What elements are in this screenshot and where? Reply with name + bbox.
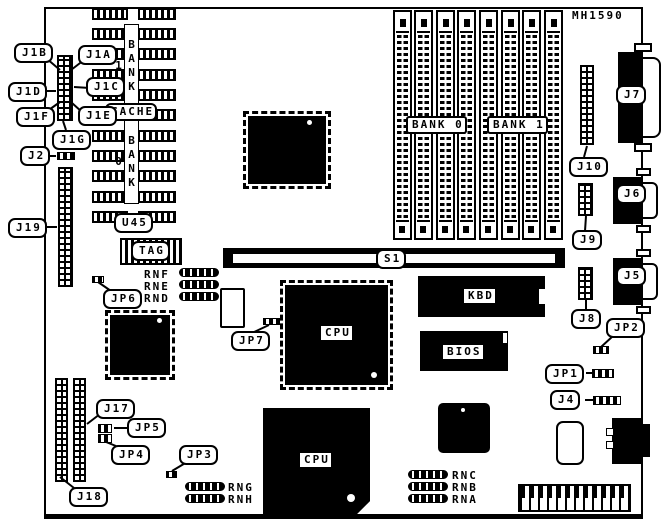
rng-network xyxy=(185,482,225,491)
rnd-label: RND xyxy=(144,293,170,304)
s1-label: S1 xyxy=(376,249,406,269)
rna-label: RNA xyxy=(452,494,478,505)
callout-jp5: JP5 xyxy=(127,418,166,438)
jp2-jumper xyxy=(593,346,609,354)
dip-chip xyxy=(138,8,176,20)
dip-chip xyxy=(92,8,128,20)
j18-connector xyxy=(55,378,68,482)
dip-chip xyxy=(92,191,128,203)
dip-chip xyxy=(138,191,176,203)
cpu-qfp-label: CPU xyxy=(320,325,353,341)
kbd-label: KBD xyxy=(463,288,496,304)
keyboard-din-connector xyxy=(612,418,643,464)
callout-j5: J5 xyxy=(616,266,646,286)
battery xyxy=(556,421,584,465)
callout-j8: J8 xyxy=(571,309,601,329)
bank0-dip-label: BANK 0 xyxy=(124,120,139,204)
j1-header xyxy=(57,55,73,121)
rna-network xyxy=(408,494,448,503)
callout-j10: J10 xyxy=(569,157,608,177)
jp5-jumper xyxy=(98,424,112,433)
j19-connector xyxy=(58,167,73,287)
rnh-label: RNH xyxy=(228,494,254,505)
callout-j18: J18 xyxy=(69,487,108,507)
rne-label: RNE xyxy=(144,281,170,292)
rnf-label: RNF xyxy=(144,269,170,280)
rnc-network xyxy=(408,470,448,479)
callout-jp2: JP2 xyxy=(606,318,645,338)
callout-jp3: JP3 xyxy=(179,445,218,465)
dip-chip xyxy=(92,130,128,142)
rnh-network xyxy=(185,494,225,503)
rnb-network xyxy=(408,482,448,491)
bank1-simm-label: BANK 1 xyxy=(487,116,548,134)
callout-j1e: J1E xyxy=(78,106,117,126)
qfp-chip xyxy=(110,315,170,375)
rne-network xyxy=(179,280,219,289)
bank0-simm-label: BANK 0 xyxy=(406,116,467,134)
callout-j2: J2 xyxy=(20,146,50,166)
cpu-socket-label: CPU xyxy=(299,452,332,468)
jp1-jumper xyxy=(592,369,614,378)
dip-chip xyxy=(138,69,176,81)
j2-jumper xyxy=(57,152,75,160)
dip-chip xyxy=(138,170,176,182)
callout-j7: J7 xyxy=(616,85,646,105)
part-number: MH1590 xyxy=(572,9,624,22)
dip-chip xyxy=(138,28,176,40)
callout-jp4: JP4 xyxy=(111,445,150,465)
callout-j9: J9 xyxy=(572,230,602,250)
j17-connector xyxy=(73,378,86,482)
dip-chip xyxy=(138,130,176,142)
callout-j6: J6 xyxy=(616,184,646,204)
callout-j1d: J1D xyxy=(8,82,47,102)
jp4-jumper xyxy=(98,434,112,443)
callout-j1b: J1B xyxy=(14,43,53,63)
callout-j19: J19 xyxy=(8,218,47,238)
callout-j17: J17 xyxy=(96,399,135,419)
tag-label: TAG xyxy=(131,241,170,261)
callout-jp7: JP7 xyxy=(231,331,270,351)
dip-chip xyxy=(138,150,176,162)
oscillator xyxy=(220,288,245,328)
power-connector xyxy=(518,484,631,512)
dip-chip xyxy=(138,89,176,101)
j8-connector xyxy=(578,267,593,300)
j10-connector xyxy=(580,65,594,145)
dip-chip xyxy=(138,48,176,60)
bios-label: BIOS xyxy=(442,344,484,360)
motherboard-diagram: MH1590 BANK 1 BANK 0 CACHE U45 TAG BANK … xyxy=(0,0,666,527)
rnf-network xyxy=(179,268,219,277)
rnd-network xyxy=(179,292,219,301)
jp6-jumper xyxy=(92,276,104,283)
rnc-label: RNC xyxy=(452,470,478,481)
callout-jp1: JP1 xyxy=(545,364,584,384)
callout-j1c: J1C xyxy=(86,77,125,97)
dip-chip xyxy=(92,170,128,182)
dip-chip xyxy=(92,28,128,40)
callout-j4: J4 xyxy=(550,390,580,410)
u45-label: U45 xyxy=(114,213,153,233)
qfp-chip xyxy=(248,116,326,184)
callout-j1g: J1G xyxy=(52,130,91,150)
callout-jp6: JP6 xyxy=(103,289,142,309)
callout-j1f: J1F xyxy=(16,107,55,127)
jp3-jumper xyxy=(166,471,177,478)
j4-connector xyxy=(593,396,621,405)
callout-j1a: J1A xyxy=(78,45,117,65)
rnb-label: RNB xyxy=(452,482,478,493)
j9-connector xyxy=(578,183,593,216)
bank1-dip-label: BANK 1 xyxy=(124,24,139,108)
jp7-jumper xyxy=(263,318,280,325)
rng-label: RNG xyxy=(228,482,254,493)
